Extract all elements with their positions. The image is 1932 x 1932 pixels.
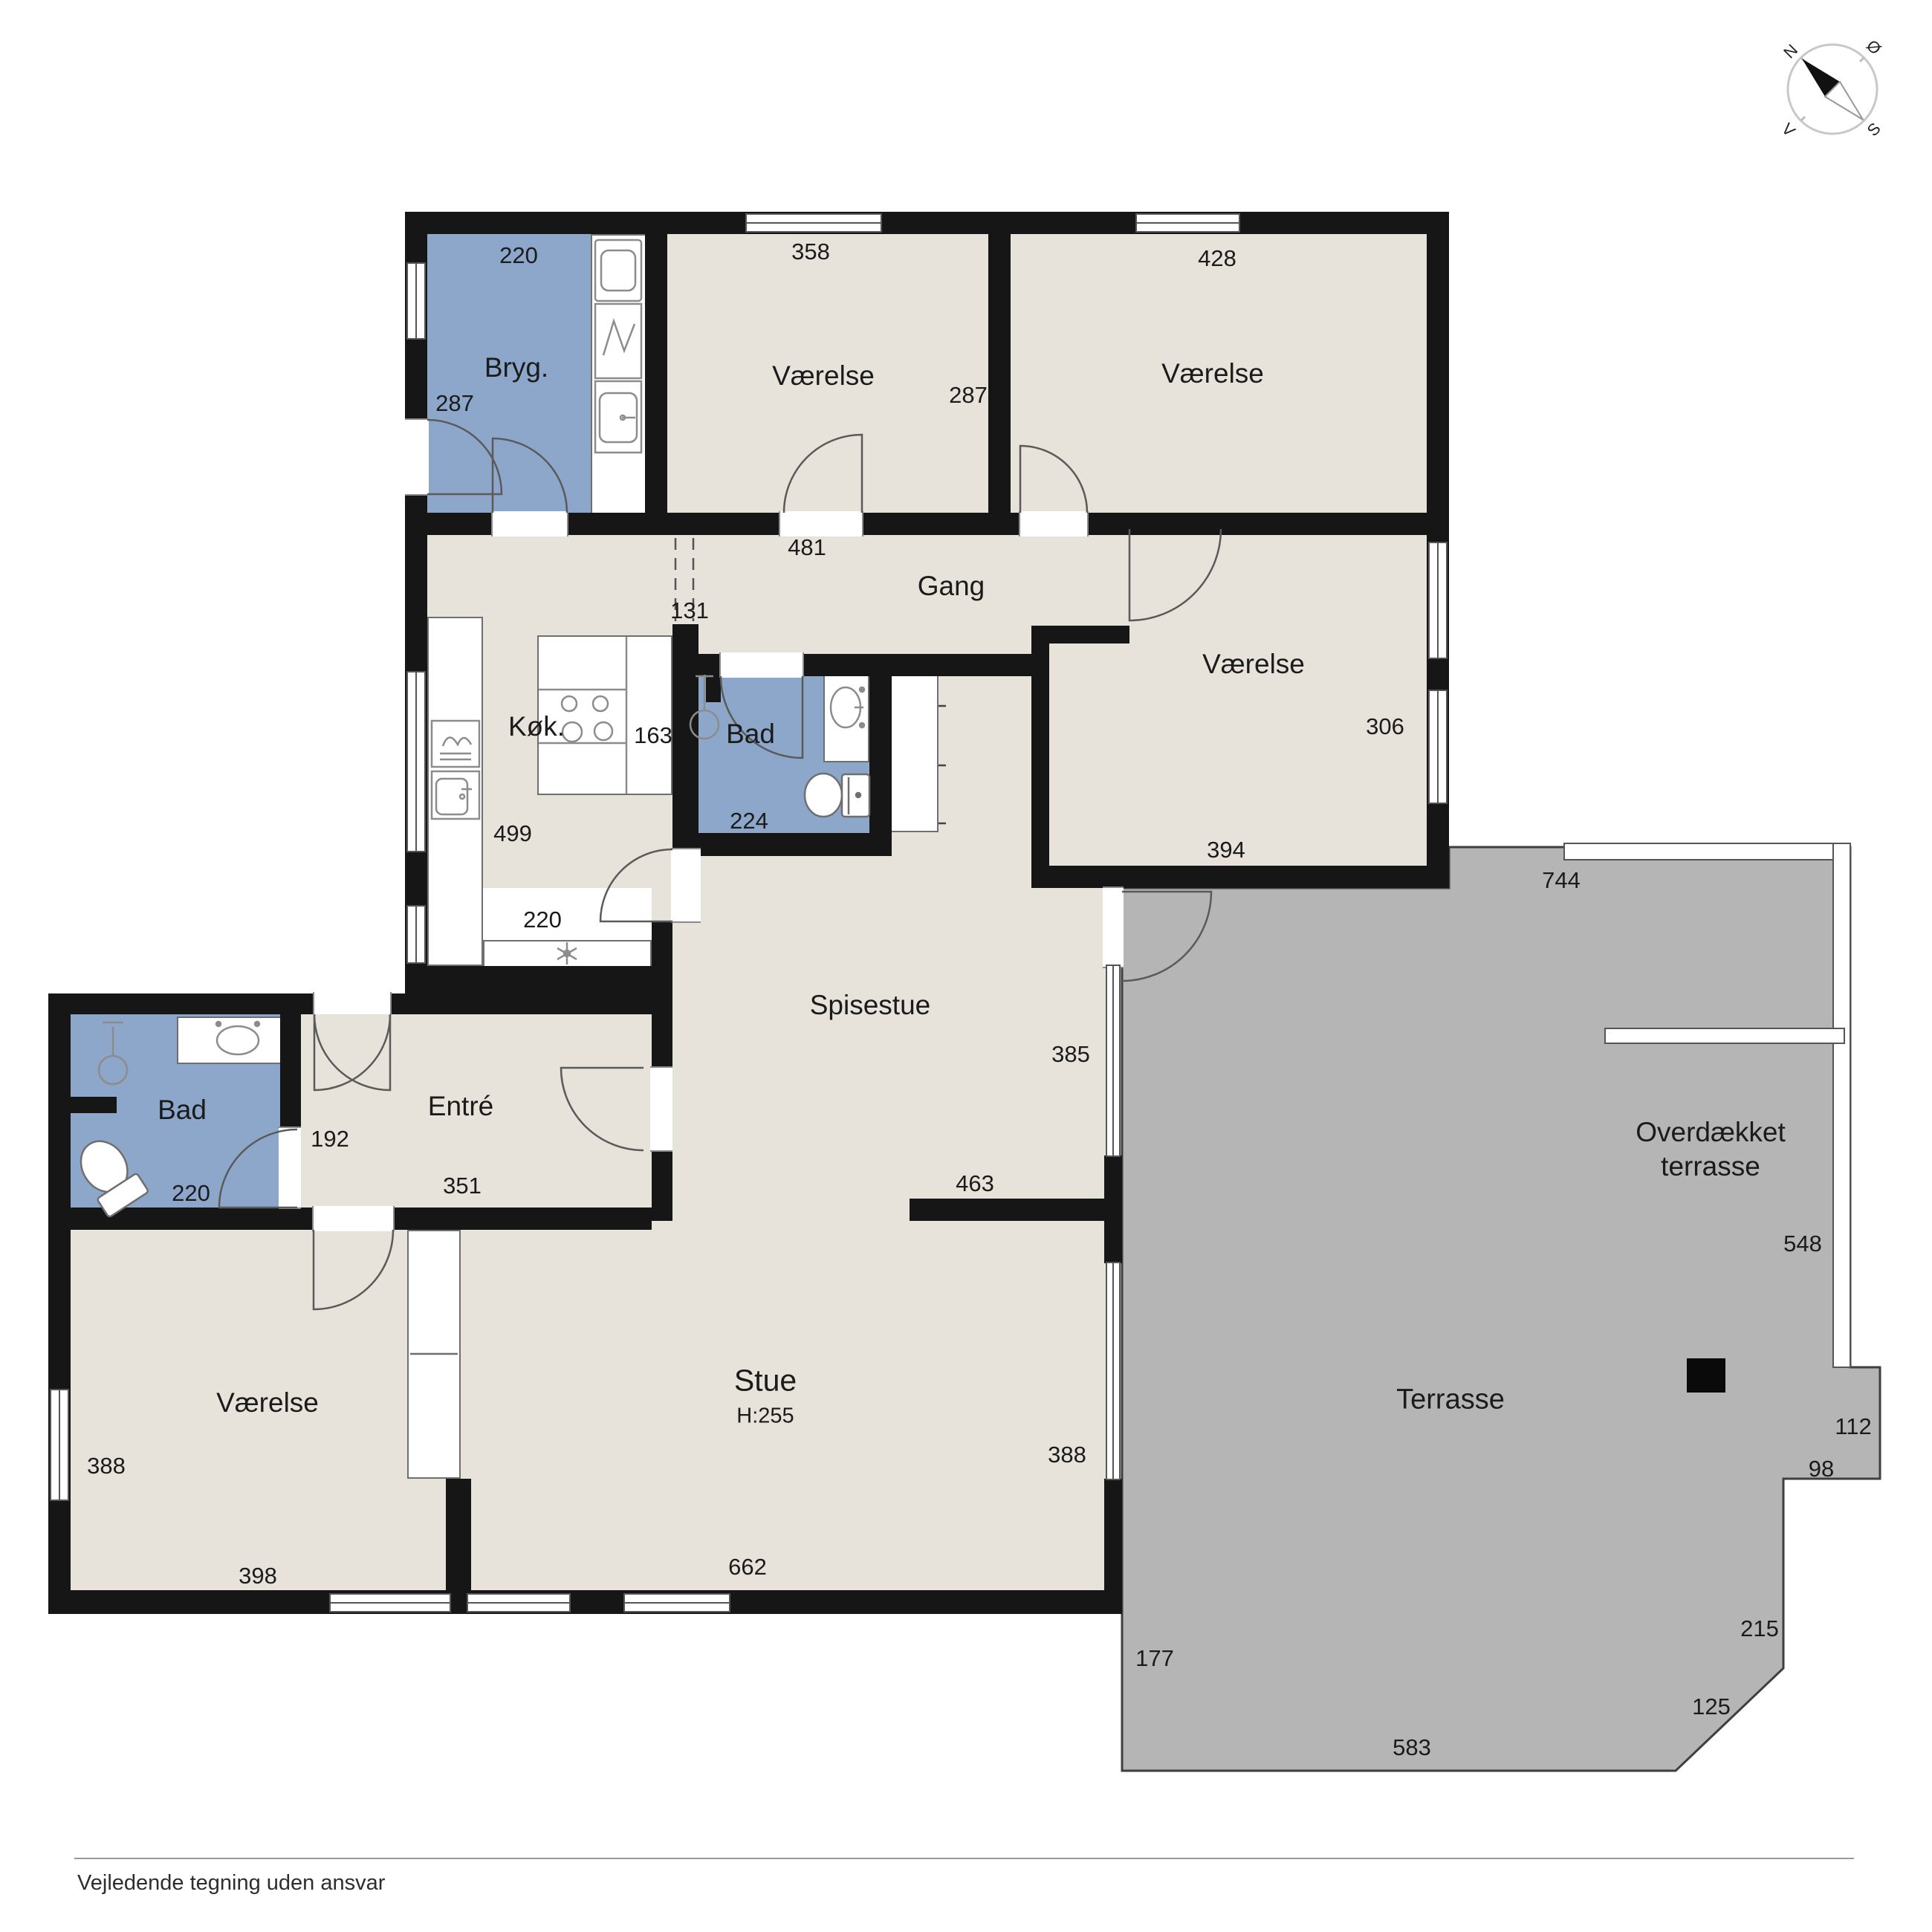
measure-spisestue-width: 463 — [956, 1170, 994, 1197]
room-label-bad-mid: Bad — [726, 719, 775, 750]
room-label-bad-west: Bad — [158, 1095, 207, 1126]
measure-terrasse-98: 98 — [1809, 1456, 1834, 1482]
measure-room-ne-width: 428 — [1198, 245, 1236, 272]
room-label-room-sw: Værelse — [216, 1387, 319, 1419]
measure-terrasse-height: 177 — [1135, 1645, 1174, 1672]
door-arc-room-e — [1129, 529, 1221, 620]
room-label-room-ne: Værelse — [1161, 358, 1264, 389]
compass-letter-v: V — [1778, 120, 1799, 140]
floor-plan: Bryg. 220 287 Værelse 358 287 Værelse 42… — [0, 0, 1932, 1932]
compass-letter-s: S — [1864, 119, 1884, 140]
measure-kok-width: 220 — [523, 907, 562, 933]
measure-entre-height: 192 — [311, 1126, 349, 1153]
measure-terrasse-width: 583 — [1393, 1734, 1431, 1761]
door-arc-entre-room-sw — [314, 1230, 393, 1309]
measure-stue-width: 662 — [728, 1554, 767, 1581]
measure-gang-opening: 131 — [670, 597, 709, 624]
door-arc-entre-spisestue — [561, 1068, 644, 1150]
room-label-terrasse: Terrasse — [1396, 1384, 1505, 1416]
measure-room-sw-width: 398 — [239, 1563, 277, 1589]
footer-divider — [74, 1858, 1854, 1859]
measure-stue-ceiling: H:255 — [736, 1404, 794, 1429]
measure-spisestue-height: 385 — [1051, 1041, 1090, 1068]
room-label-gang: Gang — [918, 571, 985, 602]
compass-rose: N Ø S V — [1774, 30, 1901, 152]
measure-room-e-height: 306 — [1366, 713, 1404, 740]
door-arc-bad-west — [219, 1129, 297, 1207]
footer-disclaimer: Vejledende tegning uden ansvar — [77, 1871, 385, 1896]
measure-entre-width: 351 — [443, 1173, 482, 1199]
measure-bad-mid-width: 224 — [730, 808, 768, 834]
room-label-kok: Køk. — [508, 711, 565, 742]
room-label-overdaekket-1: Overdækket — [1636, 1117, 1786, 1148]
measure-terrasse-215: 215 — [1740, 1615, 1779, 1642]
door-arc-room-ne — [1020, 446, 1087, 513]
measure-overdaekket-height: 548 — [1783, 1231, 1822, 1257]
measure-room-nw-width: 358 — [791, 239, 830, 265]
door-swings — [0, 0, 1932, 1932]
door-arc-entrance — [314, 1014, 390, 1090]
measure-terrasse-125: 125 — [1692, 1693, 1731, 1720]
measure-kok-height: 499 — [493, 820, 532, 847]
measure-room-e-width: 394 — [1207, 837, 1245, 863]
compass-letter-n: N — [1780, 41, 1801, 62]
measure-terrasse-112: 112 — [1835, 1413, 1871, 1440]
measure-stue-height: 388 — [1048, 1442, 1086, 1468]
measure-bryg-height: 287 — [435, 390, 474, 417]
measure-bad-mid-nook: 163 — [634, 722, 672, 749]
room-label-overdaekket-2: terrasse — [1661, 1151, 1760, 1182]
measure-room-nw-height: 287 — [949, 382, 988, 409]
room-label-room-e: Værelse — [1202, 649, 1305, 680]
door-arc-bryg — [493, 438, 567, 513]
measure-overdaekket-width: 744 — [1542, 867, 1581, 894]
door-arc-room-nw — [784, 435, 862, 513]
door-arc-terrace — [1122, 892, 1211, 981]
room-label-room-nw: Værelse — [772, 360, 875, 392]
measure-room-sw-height: 388 — [87, 1453, 126, 1479]
room-label-bryg: Bryg. — [484, 352, 548, 383]
door-arc-kitchen — [600, 849, 672, 921]
measure-gang-width: 481 — [788, 534, 826, 561]
room-label-stue: Stue — [734, 1364, 797, 1398]
measure-bryg-width: 220 — [499, 242, 538, 269]
door-arc-entrance-2 — [314, 1014, 390, 1090]
door-arc-bryg-exterior — [427, 420, 502, 494]
measure-bad-west-width: 220 — [172, 1180, 210, 1207]
room-label-spisestue: Spisestue — [810, 990, 931, 1021]
room-label-entre: Entré — [428, 1091, 493, 1122]
compass-letter-e: Ø — [1863, 36, 1885, 59]
